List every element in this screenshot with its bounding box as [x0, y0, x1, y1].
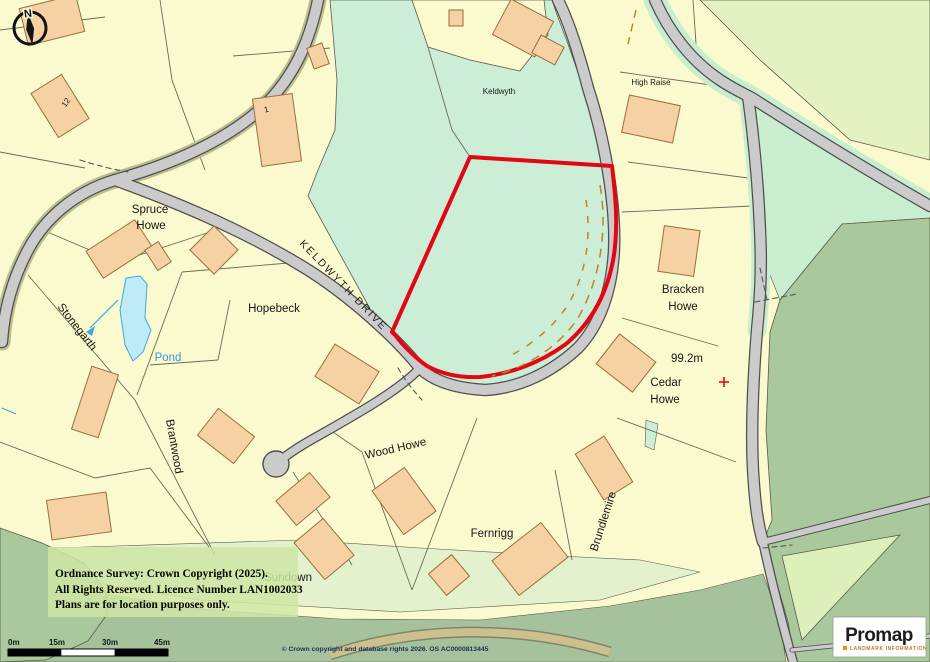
label-cedar-howe-2: Howe [650, 394, 679, 406]
os-credit: © Crown copyright and database rights 20… [282, 645, 489, 653]
scale-30m: 30m [102, 638, 118, 647]
label-bracken-howe-1: Bracken [662, 284, 704, 296]
label-spot-height: 99.2m [671, 353, 703, 365]
map-canvas[interactable]: Keldwyth High Raise 12 1 Spruce Howe Hop… [0, 0, 930, 662]
label-fernrigg: Fernrigg [471, 528, 514, 540]
label-spruce-howe-1: Spruce [132, 204, 168, 216]
building [658, 226, 700, 277]
label-high-raise: High Raise [631, 78, 671, 87]
scale-15m: 15m [49, 638, 65, 647]
landmark-bullet-icon [843, 646, 847, 650]
label-cedar-howe-1: Cedar [650, 377, 681, 389]
label-keldwyth-field: Keldwyth [483, 87, 515, 96]
label-pond: Pond [155, 352, 182, 364]
os-map[interactable]: Keldwyth High Raise 12 1 Spruce Howe Hop… [0, 0, 930, 662]
overlay-line-2: All Rights Reserved. Licence Number LAN1… [55, 584, 303, 596]
promap-logo: Promap LANDMARK INFORMATION [833, 617, 927, 657]
scale-45m: 45m [154, 638, 170, 647]
label-hopebeck: Hopebeck [248, 303, 300, 315]
label-spruce-howe-2: Howe [136, 220, 165, 232]
compass-n-label: N [23, 8, 33, 21]
building [449, 10, 463, 26]
label-bracken-howe-2: Howe [668, 301, 697, 313]
scale-0m: 0m [8, 638, 20, 647]
promap-wordmark: Promap [845, 625, 913, 646]
building [47, 492, 112, 540]
landmark-tagline: LANDMARK INFORMATION [850, 646, 927, 652]
overlay-line-3: Plans are for location purposes only. [55, 599, 230, 611]
overlay-line-1: Ordnance Survey: Crown Copyright (2025). [55, 568, 268, 580]
copyright-overlay: Ordnance Survey: Crown Copyright (2025).… [48, 547, 303, 617]
